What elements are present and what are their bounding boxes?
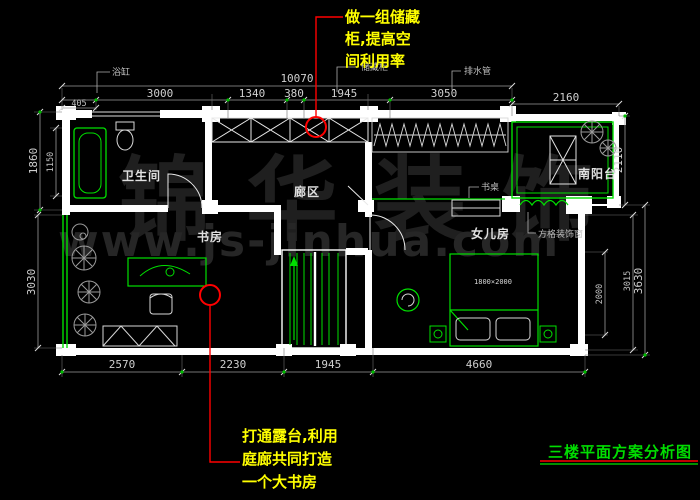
cad-floorplan-screenshot: 锦华装饰 www.js-jinhua.com (0, 0, 700, 500)
dim-top-405: 405 (71, 99, 86, 109)
room-label-study: 书房 (197, 229, 223, 244)
watermark-url-text: www.js-jinhua.com (58, 216, 560, 267)
dim-top-3050: 3050 (431, 87, 458, 100)
room-label-corridor: 廊区 (294, 184, 320, 199)
annotation-bottom-line2: 庭廊共同打造 (242, 450, 332, 468)
dim-left-1860: 1860 (27, 148, 40, 175)
annotation-top-line1: 做一组储藏 (344, 8, 420, 26)
callout-desk: 书桌 (481, 181, 499, 193)
dim-top-1340: 1340 (239, 87, 266, 100)
annotation-bottom-line3: 一个大书房 (242, 473, 317, 491)
dim-right-3015: 3015 (623, 271, 633, 291)
callout-lattice-window: 方格装饰窗 (538, 228, 583, 240)
dim-right-3630: 3630 (632, 268, 645, 295)
drawing-title: 三楼平面方案分析图 (548, 443, 692, 461)
annotation-bottom-line1: 打通露台,利用 (242, 427, 338, 445)
dim-right-2000: 2000 (595, 284, 605, 304)
room-label-bathroom: 卫生间 (122, 168, 161, 183)
room-label-daughter: 女儿房 (471, 226, 510, 241)
callout-bathtub: 浴缸 (112, 66, 130, 78)
dim-bottom-2570: 2570 (109, 358, 136, 371)
annotation-top-line3: 间利用率 (345, 52, 405, 70)
room-label-balcony: 南阳台 (578, 166, 617, 181)
dim-top-total: 10070 (280, 72, 313, 85)
dim-top-1945: 1945 (331, 87, 358, 100)
dim-top-3000: 3000 (147, 87, 174, 100)
dim-bottom-2230: 2230 (220, 358, 247, 371)
dim-left-1150: 1150 (46, 152, 56, 172)
annotation-top-line2: 柜,提高空 (344, 30, 411, 48)
dim-bottom-1945: 1945 (315, 358, 342, 371)
callout-drain: 排水管 (464, 65, 491, 77)
dim-top-380: 380 (284, 87, 304, 100)
bed-size-label: 1800×2000 (474, 278, 512, 286)
dim-left-3030: 3030 (25, 269, 38, 296)
dim-top-2160: 2160 (553, 91, 580, 104)
floor-plan-canvas: 锦华装饰 www.js-jinhua.com (0, 0, 700, 500)
dim-bottom-4660: 4660 (466, 358, 493, 371)
